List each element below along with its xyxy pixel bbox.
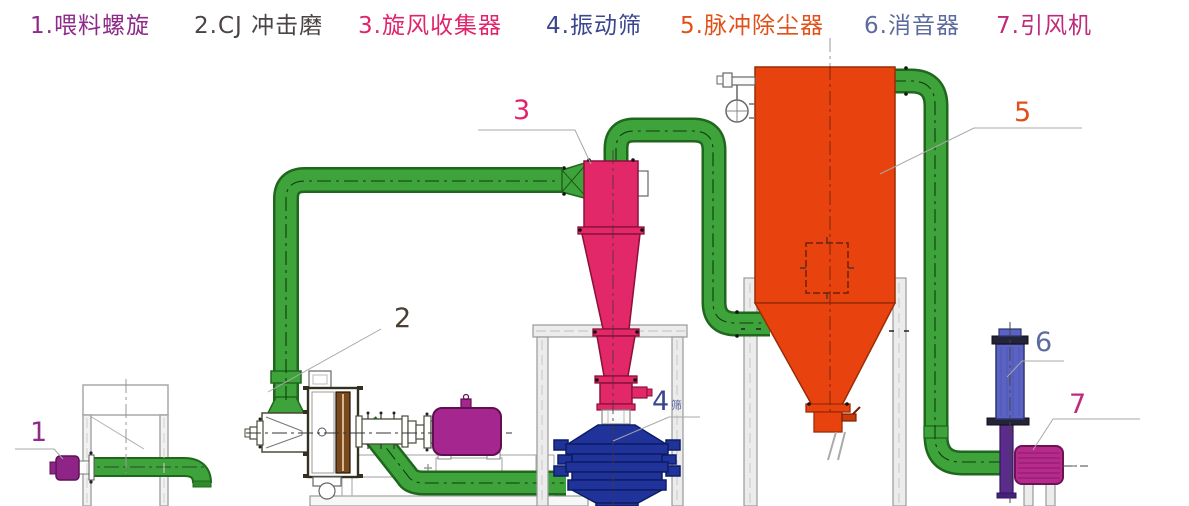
- callout-1: 1: [30, 417, 47, 448]
- rotary-valve: [600, 383, 632, 404]
- mill-motor: [433, 395, 501, 460]
- impact-mill: [245, 371, 363, 499]
- process-flow-diagram: 1.喂料螺旋 2.CJ 冲击磨 3.旋风收集器 4.振动筛 5.脉冲除尘器 6.…: [0, 0, 1189, 506]
- callout-4: 4: [652, 386, 669, 417]
- induced-draft-fan: [1015, 446, 1077, 506]
- pipe-collector-to-fan: [890, 66, 1010, 463]
- callout-6: 6: [1035, 327, 1052, 358]
- pulse-valve-gauge: [717, 73, 755, 122]
- equipment-diagram: 1 2 3 4 筛 5 6 7: [0, 0, 1189, 506]
- callout-4-annotation: 筛: [671, 398, 682, 412]
- callout-5: 5: [1014, 97, 1031, 128]
- callout-2: 2: [394, 303, 411, 334]
- feed-hopper: [83, 385, 168, 506]
- cyclone-collector: [578, 158, 652, 424]
- dust-collector: [755, 67, 895, 460]
- callout-3: 3: [513, 95, 530, 126]
- vibrating-screen: [554, 425, 680, 506]
- callout-7: 7: [1069, 389, 1086, 420]
